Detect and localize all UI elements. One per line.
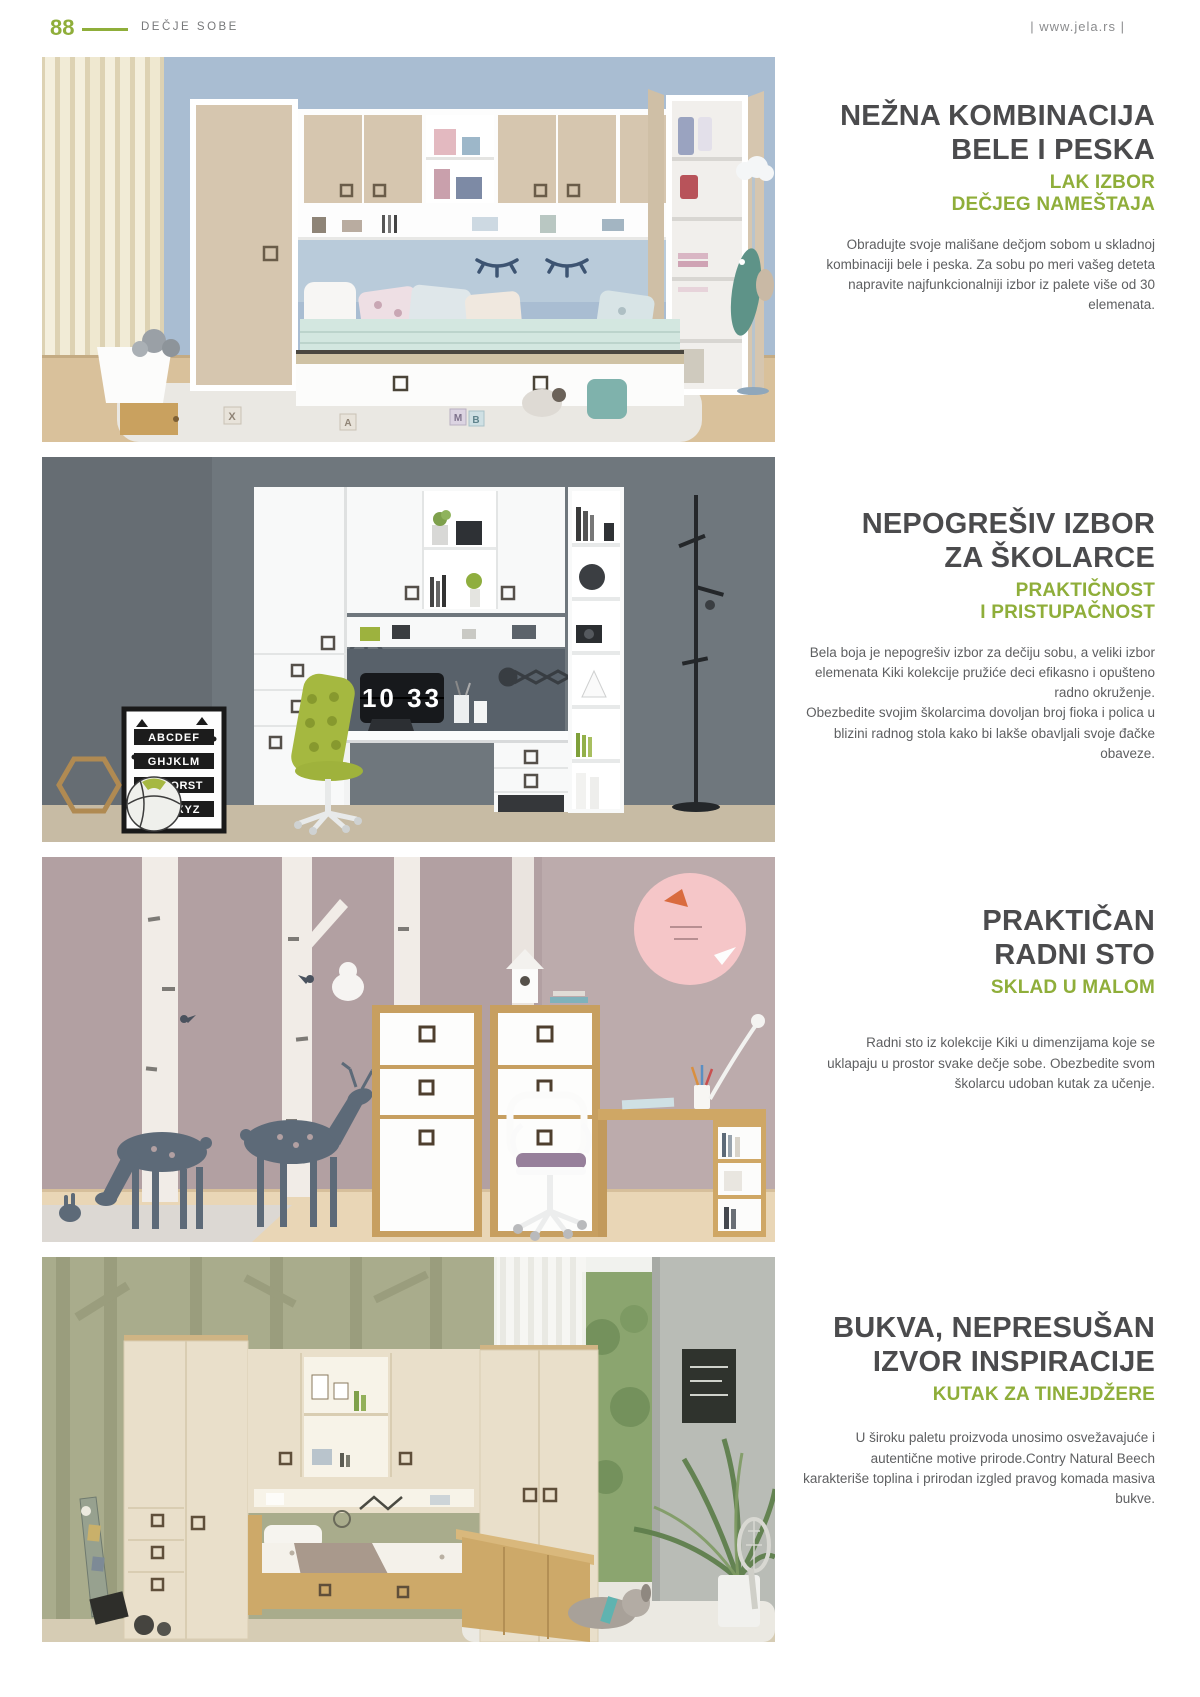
- section-subtitle: KUTAK ZA TINEJDŽERE: [775, 1384, 1155, 1406]
- header-rule: [82, 28, 128, 31]
- wall-shelf: [298, 209, 690, 240]
- study-room-scene: ABCDEF GHJKLM NOPQRST UVWXYZ: [42, 457, 775, 842]
- pencil-cup: [694, 1085, 710, 1109]
- basket-niche: [498, 795, 564, 812]
- teen-room-scene: [42, 1257, 775, 1642]
- volleyball: [127, 777, 181, 831]
- left-wardrobe: [190, 99, 298, 391]
- title-line: BUKVA, NEPRESUŠAN: [833, 1312, 1155, 1344]
- svg-text:GHJKLM: GHJKLM: [148, 756, 200, 768]
- black-frame: [682, 1349, 736, 1423]
- title-line: RADNI STO: [994, 939, 1155, 971]
- section-text: BUKVA, NEPRESUŠANIZVOR INSPIRACIJE KUTAK…: [775, 1312, 1155, 1509]
- section-paragraph: U široku paletu proizvoda unosimo osveža…: [803, 1428, 1155, 1509]
- section-text: NEŽNA KOMBINACIJABELE I PESKA LAK IZBORD…: [775, 100, 1155, 316]
- svg-text:X: X: [228, 411, 236, 423]
- pink-pinboard: [634, 873, 746, 985]
- desk-leg: [598, 1120, 607, 1237]
- wood-crate: [120, 403, 178, 435]
- header-website: | www.jela.rs |: [1030, 19, 1125, 34]
- svg-text:10 33: 10 33: [362, 683, 442, 713]
- section-paragraph: Radni sto iz kolekcije Kiki u dimenzijam…: [825, 1033, 1155, 1094]
- bed-drawers: [260, 1573, 462, 1609]
- bag: [756, 269, 774, 301]
- pencil-cup: [454, 695, 469, 723]
- section-title: PRAKTIČANRADNI STO: [775, 905, 1155, 973]
- bridge-cabinets: [298, 109, 690, 209]
- laptop: [368, 719, 414, 731]
- hanging-clothes: [678, 117, 694, 155]
- svg-text:B: B: [472, 415, 479, 426]
- photo-teen-room-beech: [42, 1257, 775, 1642]
- header-section-label: DEČJE SOBE: [141, 21, 239, 33]
- white-stool: [97, 347, 172, 403]
- section-text: NEPOGREŠIV IZBORZA ŠKOLARCE PRAKTIČNOSTI…: [775, 508, 1155, 764]
- section-paragraph: Obradujte svoje mališane dečjom sobom u …: [783, 235, 1155, 316]
- photo-kids-room-white-sand: X A M B: [42, 57, 775, 442]
- section-title: NEŽNA KOMBINACIJABELE I PESKA: [775, 100, 1155, 168]
- svg-text:A: A: [344, 418, 351, 429]
- open-door: [748, 91, 764, 395]
- section-subtitle: PRAKTIČNOSTI PRISTUPAČNOST: [775, 580, 1155, 625]
- section-paragraph: Obezbedite svojim školarcima dovoljan br…: [783, 703, 1155, 764]
- section-paragraph: Bela boja je nepogrešiv izbor za dečiju …: [783, 643, 1155, 704]
- page-number: 88: [50, 15, 74, 41]
- title-line: ZA ŠKOLARCE: [944, 542, 1155, 574]
- bed-back-panel: [298, 240, 690, 302]
- desk-top: [342, 731, 570, 740]
- open-shelf-column: [568, 487, 624, 813]
- title-line: BELE I PESKA: [951, 134, 1155, 166]
- photo-frame: [312, 1375, 328, 1399]
- svg-text:M: M: [454, 413, 462, 424]
- section-title: BUKVA, NEPRESUŠANIZVOR INSPIRACIJE: [775, 1312, 1155, 1380]
- svg-text:ABCDEF: ABCDEF: [148, 732, 200, 744]
- photo-desk-room: [42, 857, 775, 1242]
- section-title: NEPOGREŠIV IZBORZA ŠKOLARCE: [775, 508, 1155, 576]
- photo-study-room: ABCDEF GHJKLM NOPQRST UVWXYZ: [42, 457, 775, 842]
- title-line: PRAKTIČAN: [982, 905, 1155, 937]
- catalog-page: { "page": { "number": "88", "section_lab…: [0, 0, 1200, 1697]
- section-subtitle: SKLAD U MALOM: [775, 977, 1155, 999]
- ampersand-decor: [579, 564, 605, 590]
- section-subtitle: LAK IZBORDEČJEG NAMEŠTAJA: [775, 172, 1155, 217]
- flip-clock: 10 33: [360, 673, 444, 723]
- title-line: NEŽNA KOMBINACIJA: [840, 100, 1155, 132]
- desk-top: [598, 1109, 766, 1120]
- desk-room-scene: [42, 857, 775, 1242]
- teal-basket: [587, 379, 627, 419]
- title-line: NEPOGREŠIV IZBOR: [862, 508, 1155, 540]
- seat-cushion: [516, 1153, 586, 1169]
- title-line: IZVOR INSPIRACIJE: [873, 1346, 1155, 1378]
- kids-room-scene: X A M B: [42, 57, 775, 442]
- section-text: PRAKTIČANRADNI STO SKLAD U MALOM Radni s…: [775, 905, 1155, 1094]
- headboard: [248, 1515, 262, 1615]
- bedding: [300, 319, 680, 352]
